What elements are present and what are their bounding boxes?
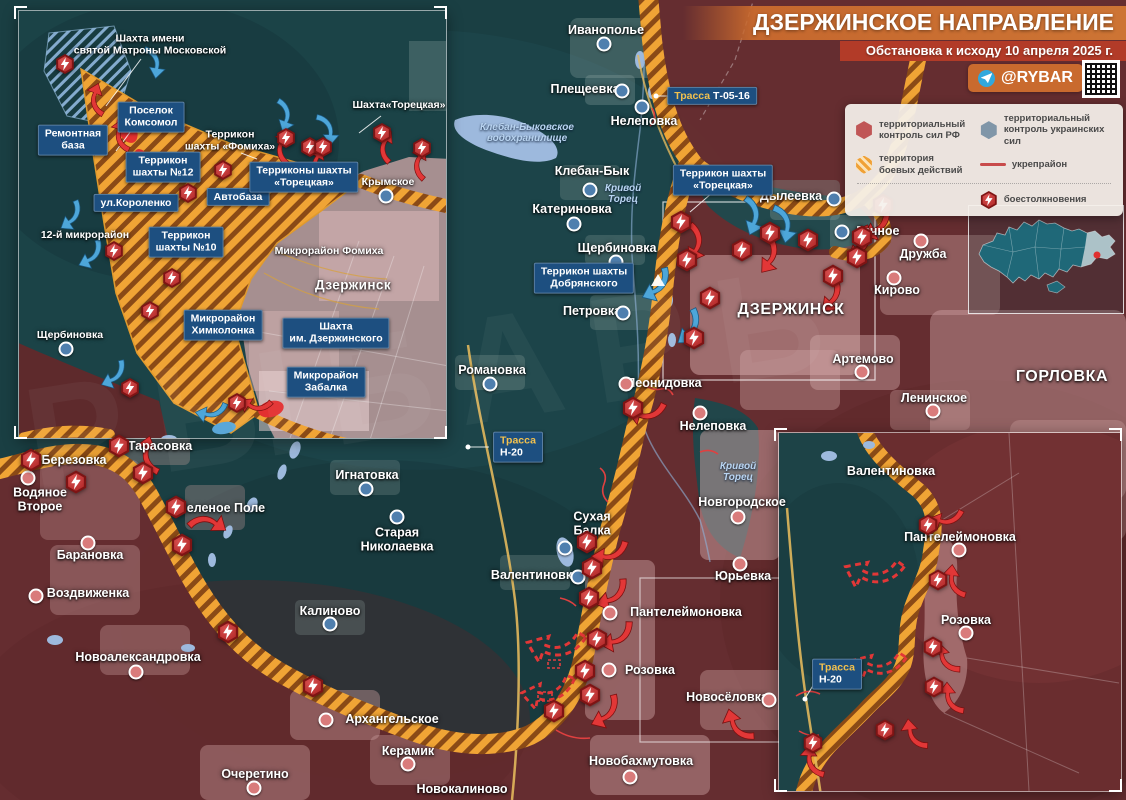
clash-icon [980,191,998,209]
fortified-line-swatch [980,163,1006,166]
legend-label: боестолкновения [1004,194,1087,205]
channel-name: @RYBAR [1001,69,1073,87]
legend-label: территориальный контроль украинских сил [1004,113,1113,147]
legend-item-ua: территориальный контроль украинских сил [980,113,1113,147]
legend-separator [857,183,1111,184]
legend: территориальный контроль сил РФ территор… [845,104,1123,216]
combat-zone-swatch [855,156,873,174]
qr-code [1082,60,1120,98]
legend-label: укрепрайон [1012,159,1067,170]
legend-item-combat: территория боевых действий [855,153,970,176]
situation-map: РЫБАРЬ ИванопольеПлещеевкаНелеповкаКлеба… [0,0,1126,800]
legend-label: территория боевых действий [879,153,962,176]
telegram-icon [978,70,995,87]
legend-item-clash: боестолкновения [980,191,1113,209]
legend-item-fortified: укрепрайон [980,153,1113,176]
ua-control-swatch [980,121,998,139]
legend-label: территориальный контроль сил РФ [879,119,965,142]
inset-tl-art [19,11,446,438]
rybar-badge: @RYBAR [968,64,1083,92]
ru-control-swatch [855,121,873,139]
inset-panteleimonovka-detail [778,432,1122,792]
inset-br-art [779,433,1121,791]
legend-item-ru: территориальный контроль сил РФ [855,113,970,147]
inset-dzerzhinsk-detail [18,10,447,439]
location-dot [1094,252,1101,259]
ukraine-minimap [968,205,1124,314]
